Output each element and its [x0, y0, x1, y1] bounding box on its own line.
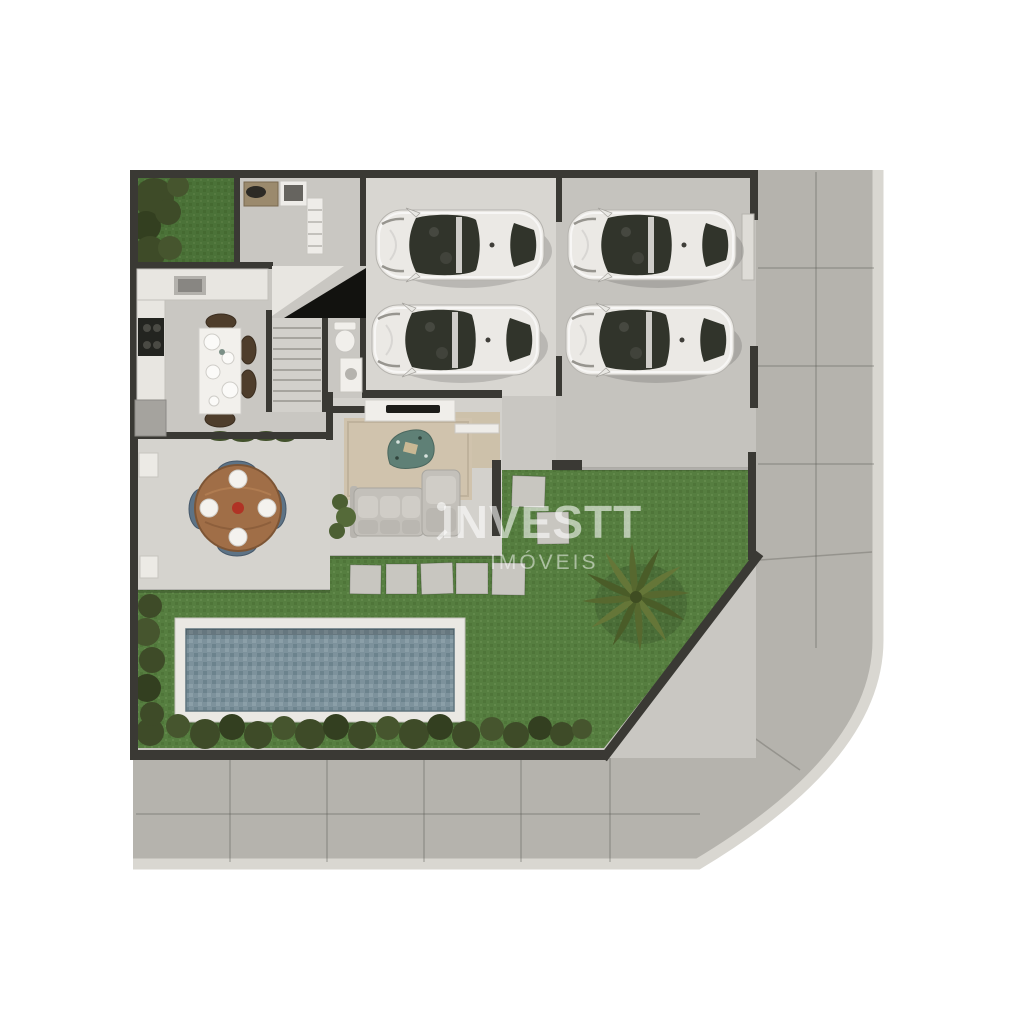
edge-shadow — [330, 555, 502, 559]
pool-water — [186, 629, 454, 711]
centerpiece — [232, 502, 244, 514]
pool — [175, 618, 465, 728]
floor-plan-render: INVESTT IMÓVEIS — [0, 0, 1024, 1024]
wall-fixture — [140, 556, 158, 578]
edge-shadow — [556, 467, 756, 471]
edge-shadow — [133, 589, 330, 593]
car-4 — [566, 303, 742, 383]
wall-fixture — [139, 453, 158, 477]
floor-plan — [0, 0, 1024, 1024]
car-2 — [372, 303, 548, 383]
entry-shelf — [455, 424, 499, 433]
toilet — [334, 322, 356, 330]
car-1 — [376, 208, 552, 288]
cooktop — [138, 318, 164, 356]
car-3 — [568, 208, 744, 288]
refrigerator — [135, 400, 166, 436]
tv — [386, 405, 440, 413]
gate-pillar — [742, 214, 754, 280]
